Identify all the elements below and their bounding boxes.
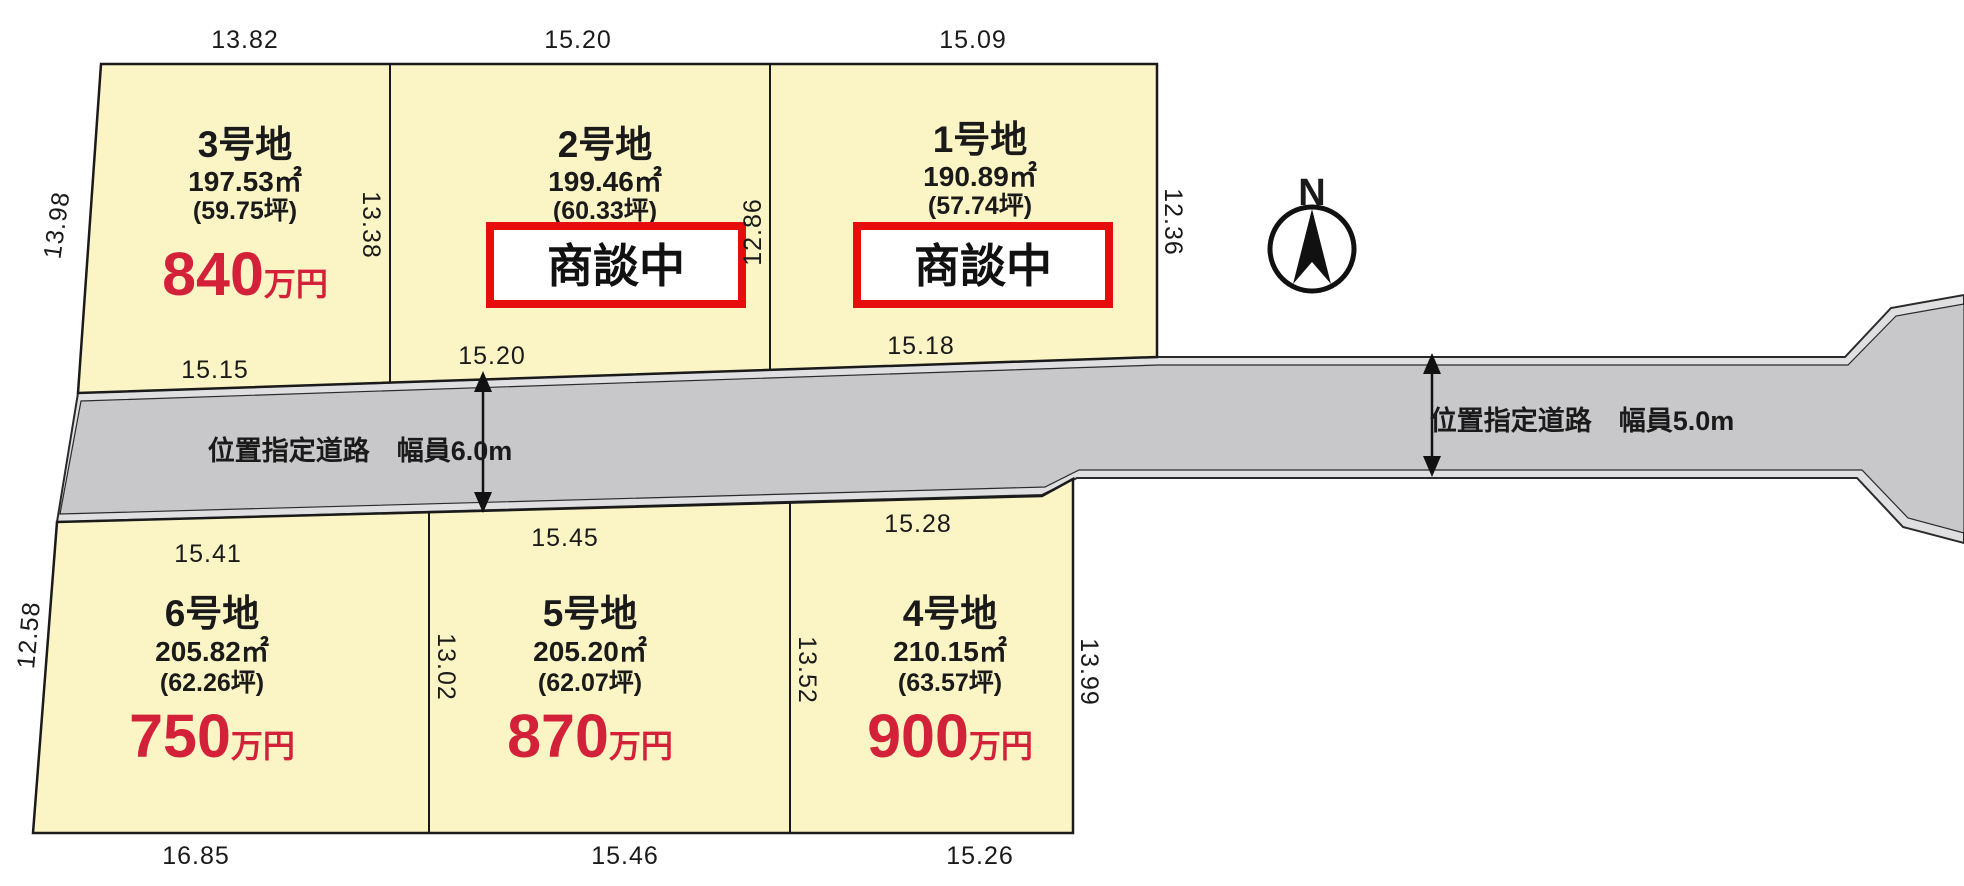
plot-2-status: 商談中	[547, 240, 685, 292]
dim-roadside-plot3: 15.15	[181, 356, 249, 384]
dim-top-plot3: 13.82	[211, 26, 279, 54]
road-label-5m: 位置指定道路 幅員5.0m	[1430, 405, 1735, 436]
plot-3-name: 3号地	[198, 124, 293, 165]
dim-top-plot1: 15.09	[939, 26, 1007, 54]
dim-right-lower: 13.99	[1075, 638, 1103, 706]
road-label-6m: 位置指定道路 幅員6.0m	[208, 435, 513, 466]
plot-1-name: 1号地	[933, 119, 1028, 160]
plot-3-tsubo: (59.75坪)	[193, 197, 297, 225]
dim-roadside-plot1: 15.18	[887, 332, 955, 360]
plot-4-tsubo: (63.57坪)	[898, 669, 1002, 697]
plot-6-name: 6号地	[165, 593, 260, 634]
dim-left-lower: 12.58	[12, 600, 46, 670]
dim-left-upper: 13.98	[38, 190, 75, 261]
plot-5-area: 205.20㎡	[533, 635, 647, 667]
plot-1-area: 190.89㎡	[923, 160, 1037, 192]
plot-5-tsubo: (62.07坪)	[538, 669, 642, 697]
dim-side-plot3-plot2: 13.38	[357, 191, 385, 259]
plot-6-tsubo: (62.26坪)	[160, 669, 264, 697]
compass: N	[1270, 172, 1354, 291]
plot-4-area: 210.15㎡	[893, 635, 1007, 667]
dim-bottom-plot6: 16.85	[162, 842, 230, 870]
dim-bottom-plot5: 15.46	[591, 842, 659, 870]
plot-2-name: 2号地	[558, 124, 653, 165]
plot-6-area: 205.82㎡	[155, 635, 269, 667]
plot-2-area: 199.46㎡	[548, 165, 662, 197]
plot-2-tsubo: (60.33坪)	[553, 197, 657, 225]
lot-subdivision-map: 位置指定道路 幅員6.0m 位置指定道路 幅員5.0m 3号地 197.53㎡ …	[0, 0, 1964, 886]
plot-4-name: 4号地	[903, 593, 998, 634]
dim-roadside-plot4: 15.28	[884, 510, 952, 538]
dim-roadside-plot2: 15.20	[458, 342, 526, 370]
dim-roadside-plot6: 15.41	[174, 540, 242, 568]
dim-bottom-plot4: 15.26	[946, 842, 1014, 870]
dim-side-plot6-plot5: 13.02	[432, 633, 460, 701]
plot-1-tsubo: (57.74坪)	[928, 192, 1032, 220]
plot-1-status: 商談中	[914, 240, 1052, 292]
dim-side-plot2-plot1: 12.86	[739, 198, 767, 266]
dim-side-plot5-plot4: 13.52	[793, 636, 821, 704]
dim-top-plot2: 15.20	[544, 26, 612, 54]
dim-right-upper: 12.36	[1159, 188, 1187, 256]
plot-5-name: 5号地	[543, 593, 638, 634]
plot-3-area: 197.53㎡	[188, 165, 302, 197]
dim-roadside-plot5: 15.45	[531, 524, 599, 552]
